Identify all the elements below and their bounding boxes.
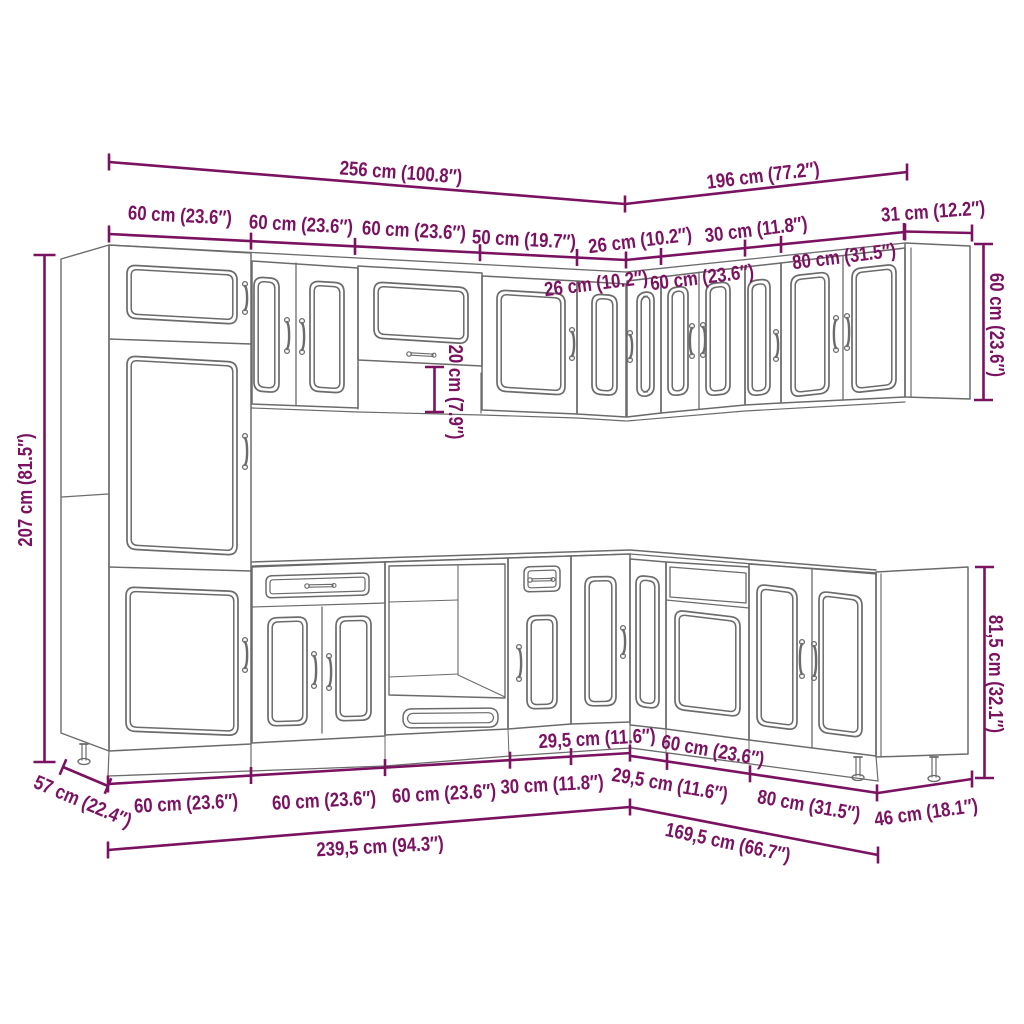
svg-text:60 cm (23.6″): 60 cm (23.6″): [986, 273, 1009, 377]
svg-text:20 cm (7.9″): 20 cm (7.9″): [445, 345, 468, 440]
svg-text:81,5 cm (32.1″): 81,5 cm (32.1″): [985, 615, 1008, 733]
svg-text:207 cm (81.5″): 207 cm (81.5″): [14, 433, 37, 546]
